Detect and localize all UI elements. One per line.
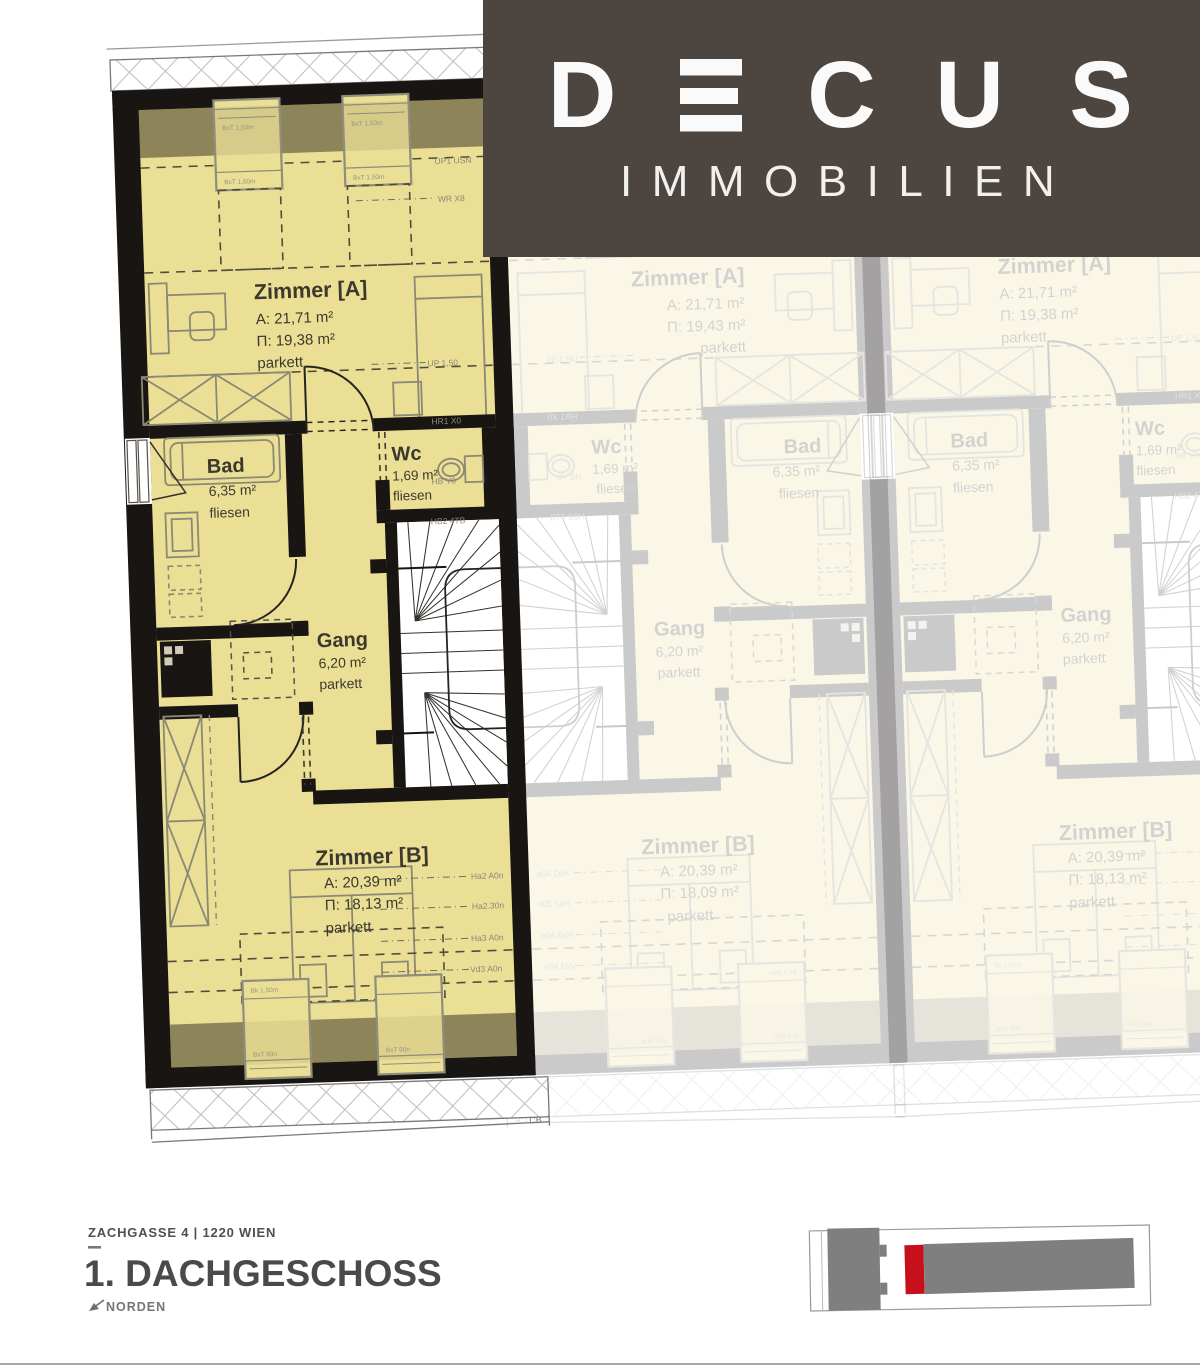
svg-text:U: U (935, 42, 1004, 148)
svg-text:C: C (807, 42, 876, 148)
svg-text:IMMOBILIEN: IMMOBILIEN (620, 157, 1074, 206)
svg-text:ZACHGASSE 4 | 1220 WIEN: ZACHGASSE 4 | 1220 WIEN (88, 1225, 276, 1240)
svg-text:D: D (548, 42, 617, 148)
svg-text:1. DACHGESCHOSS: 1. DACHGESCHOSS (84, 1253, 442, 1294)
svg-text:S: S (1069, 42, 1132, 148)
svg-text:NORDEN: NORDEN (106, 1300, 166, 1314)
